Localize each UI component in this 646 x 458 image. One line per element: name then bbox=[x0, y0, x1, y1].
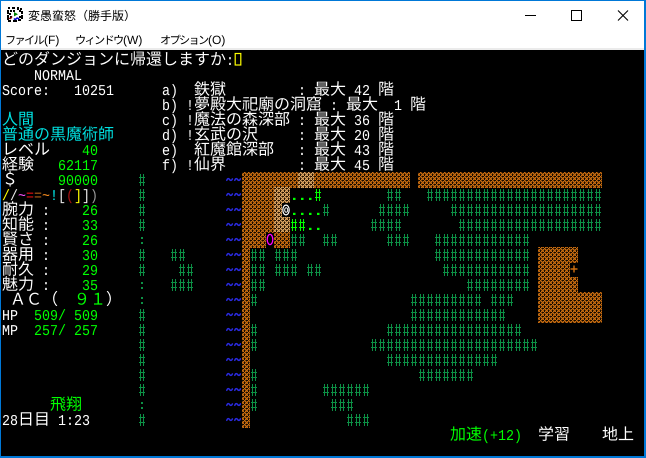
svg-text:!: ! bbox=[186, 158, 194, 175]
svg-text::: : bbox=[330, 98, 338, 115]
svg-text:=: = bbox=[34, 188, 42, 205]
svg-text::: : bbox=[42, 278, 50, 295]
svg-text:f): f) bbox=[162, 158, 178, 175]
svg-text:=: = bbox=[26, 188, 34, 205]
svg-text:(F): (F) bbox=[44, 33, 59, 47]
svg-text:35: 35 bbox=[82, 278, 98, 295]
svg-text:257/ 257: 257/ 257 bbox=[34, 323, 98, 340]
svg-text:[: [ bbox=[58, 188, 66, 205]
svg-text:(O): (O) bbox=[208, 33, 225, 47]
svg-text:Score:: Score: bbox=[2, 83, 50, 100]
svg-text:1:23: 1:23 bbox=[58, 413, 90, 430]
svg-text:!: ! bbox=[50, 188, 58, 205]
svg-text:MP: MP bbox=[2, 323, 18, 340]
svg-text:28: 28 bbox=[2, 413, 18, 430]
svg-text:/: / bbox=[10, 188, 18, 205]
svg-text:]: ] bbox=[74, 188, 82, 205]
svg-text::: : bbox=[226, 53, 234, 70]
svg-text:10251: 10251 bbox=[74, 83, 114, 100]
svg-text::: : bbox=[298, 158, 306, 175]
svg-text:(W): (W) bbox=[123, 33, 142, 47]
svg-text:1: 1 bbox=[386, 98, 402, 115]
svg-text:!: ! bbox=[186, 128, 194, 145]
svg-text:(: ( bbox=[66, 188, 74, 205]
svg-text:45: 45 bbox=[354, 158, 370, 175]
svg-text:(+12): (+12) bbox=[482, 428, 522, 445]
